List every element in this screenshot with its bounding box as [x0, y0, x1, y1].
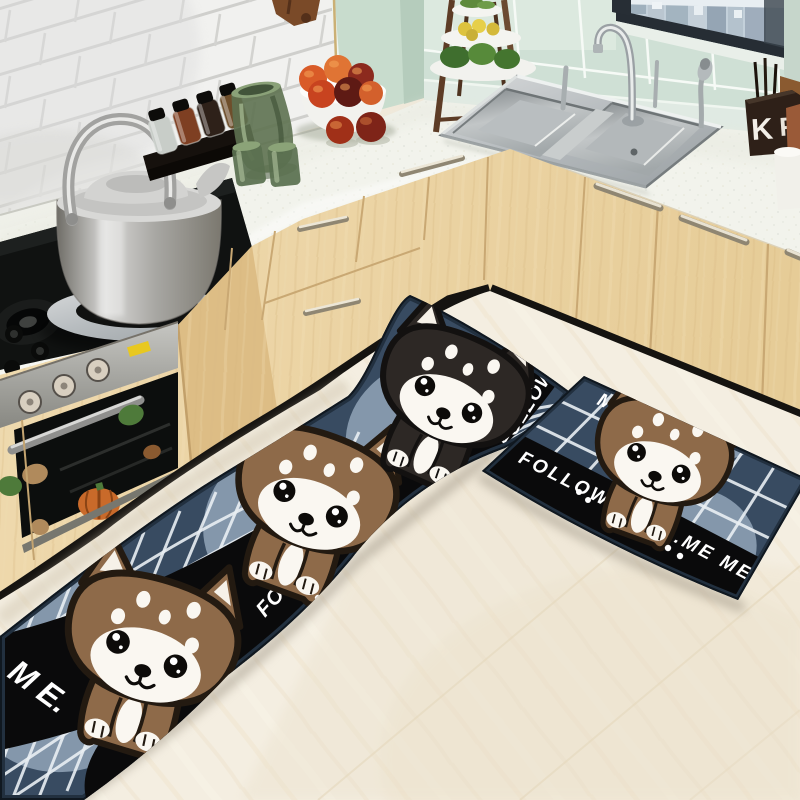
svg-text:K: K: [750, 113, 774, 147]
